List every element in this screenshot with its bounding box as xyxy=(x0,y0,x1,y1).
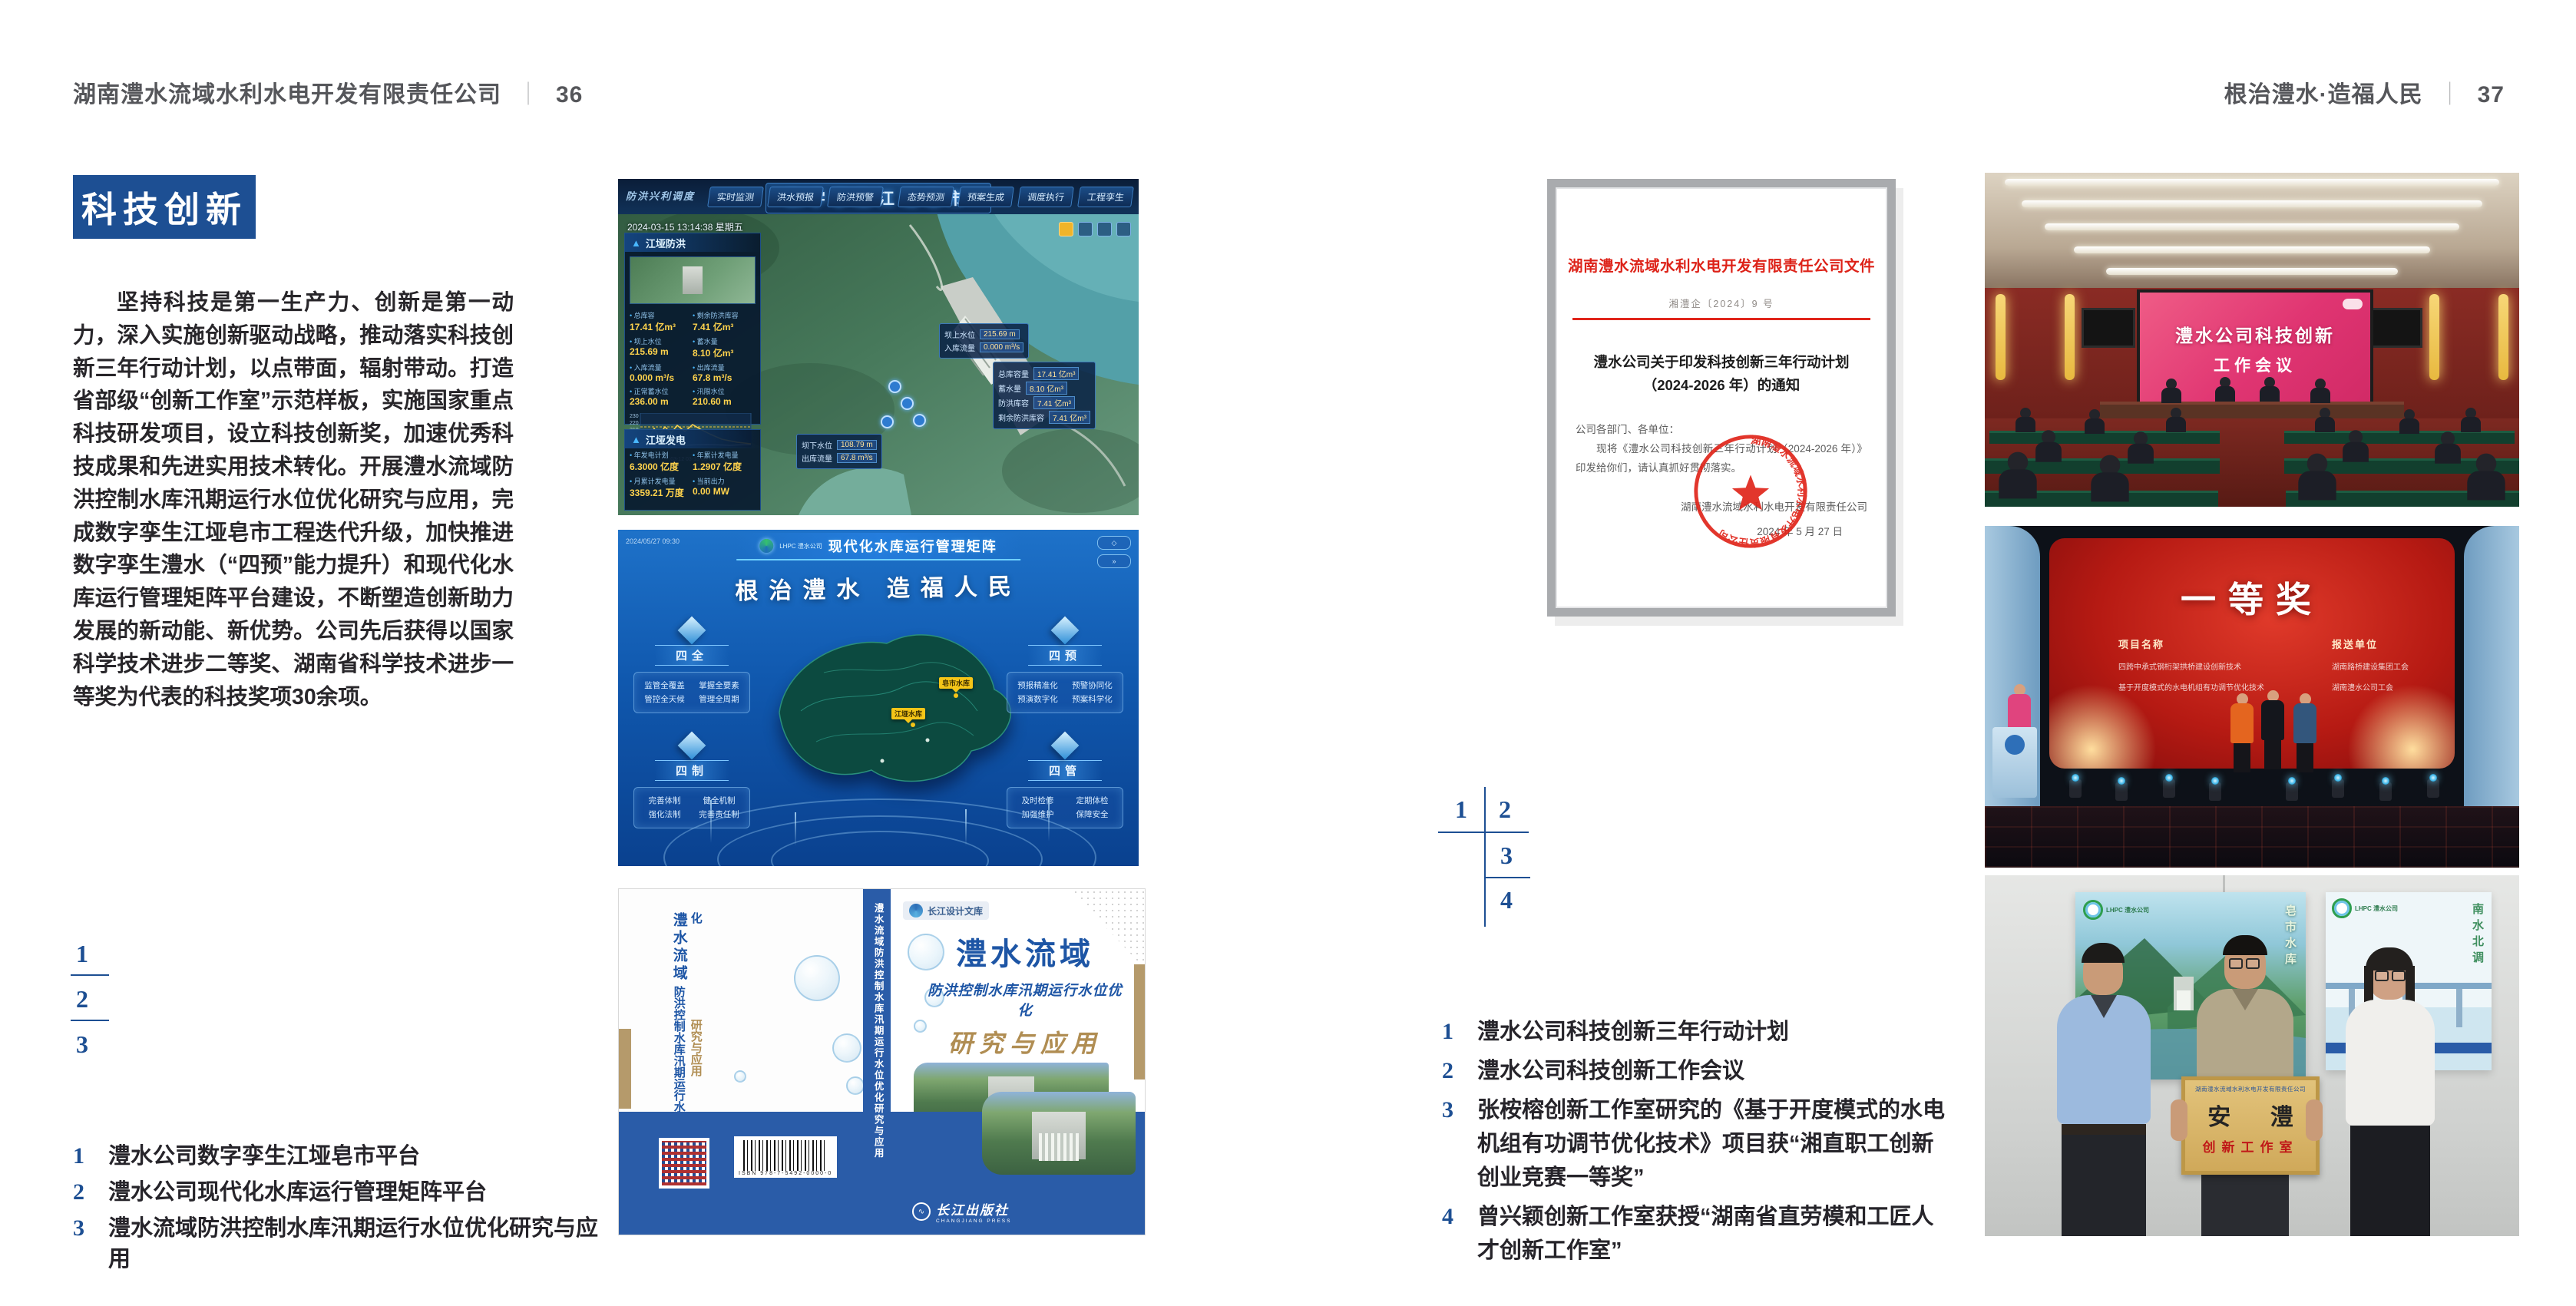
group-icon xyxy=(678,617,706,645)
group-name: 四制 xyxy=(655,760,729,781)
book-subtitle: 防洪控制水库汛期运行水位优化 xyxy=(921,980,1129,1020)
book-spine: 澧水流域防洪控制水库汛期运行水位优化研究与应用 xyxy=(863,889,891,1235)
awardee-orange xyxy=(2230,693,2254,772)
water-bubble xyxy=(794,955,840,1001)
caption-row: 3 澧水流域防洪控制水库汛期运行水位优化研究与应用 xyxy=(73,1213,610,1275)
callout-value: 108.79 m xyxy=(837,440,877,450)
caption-text: 澧水公司科技创新工作会议 xyxy=(1477,1054,1744,1088)
body-paragraph: 坚持科技是第一生产力、创新是第一动力，深入实施创新驱动战略，推动落实科技创新三年… xyxy=(73,286,514,713)
ceiling-light xyxy=(2106,268,2398,275)
audience-person xyxy=(2035,430,2062,462)
stat: 月累计发电量3359.21 万度 xyxy=(630,476,693,499)
group-item: 管理全周期 xyxy=(692,693,746,706)
gold-orb xyxy=(2049,684,2157,769)
figure-reservoir-matrix-platform: 2024/05/27 09:30 ◇ » LHPC 澧水公司 现代化水库运行管理… xyxy=(618,530,1139,866)
book-front-cover: 长江设计文库 澧水流域 防洪控制水库汛期运行水位优化 研究与应用 洪兴骏 沈坤民… xyxy=(891,889,1145,1235)
series-badge-text: 长江设计文库 xyxy=(928,904,983,918)
stat-value: 0.000 m³/s xyxy=(630,372,693,383)
group-item: 及时检修 xyxy=(1010,794,1065,808)
stat-value: 1.2907 亿度 xyxy=(693,460,756,473)
company-seal-stamp: 湖南澧水流域水利水电开发有限责任公司 xyxy=(1691,431,1810,551)
award-col-projects: 项目名称 四跨中承式钢桁架拱桥建设创新技术 基于开度模式的水电机组有功调节优化技… xyxy=(2118,636,2264,693)
stat-value: 67.8 m³/s xyxy=(693,372,756,383)
callout-value: 0.000 m³/s xyxy=(980,342,1023,352)
audience-person xyxy=(2128,431,2154,464)
gate-marker-icon xyxy=(881,415,894,428)
seated-person xyxy=(2161,379,2181,403)
stat-label: 当前出力 xyxy=(693,476,756,486)
caption-number: 3 xyxy=(1442,1093,1477,1195)
caption-number: 1 xyxy=(1442,1015,1477,1049)
dashboard-tabs-left: 实时监测 洪水预报 防洪预警 xyxy=(709,187,882,207)
front-tan-bar xyxy=(1134,964,1145,1080)
matrix-buttons: ◇ » xyxy=(1097,536,1131,568)
stat-label: 出库流量 xyxy=(693,362,756,372)
document-red-rule xyxy=(1572,318,1870,320)
wall-lamp xyxy=(2429,294,2439,380)
book-title2: 研究与应用 xyxy=(921,1024,1129,1060)
caption-number: 4 xyxy=(1442,1200,1477,1268)
lhpc-logo-icon: LHPC 澧水公司 xyxy=(2332,898,2398,918)
tab-dispatch-execution: 调度执行 xyxy=(1017,187,1074,207)
audience-person xyxy=(2467,454,2505,501)
index-divider xyxy=(1484,877,1530,878)
matrix-logo-text: LHPC 澧水公司 xyxy=(779,543,822,550)
group-siyu: 四预 预报精准化 预警协同化 预演数字化 预案科学化 xyxy=(1007,620,1123,713)
group-item: 预警协同化 xyxy=(1065,679,1119,693)
group-item: 保障安全 xyxy=(1065,808,1119,822)
ceiling-light xyxy=(2022,200,2482,207)
award-project: 四跨中承式钢桁架拱桥建设创新技术 xyxy=(2118,660,2264,672)
audience-person xyxy=(2315,408,2335,432)
stat: 正常蓄水位236.00 m xyxy=(630,386,693,407)
basin-map xyxy=(732,603,1039,811)
publisher-name-en: CHANGJIANG PRESS xyxy=(936,1218,1011,1224)
index-divider xyxy=(71,974,109,976)
map-marker-zaoshi: 皂市水库 xyxy=(939,677,973,689)
panel-header: ▲江垭发电 xyxy=(625,430,760,448)
stage-light-icon xyxy=(2427,779,2439,798)
wall-lamp xyxy=(2498,294,2508,380)
side-tv xyxy=(2369,308,2422,348)
front-blue-band: ∿ 长江出版社 CHANGJIANG PRESS xyxy=(891,1112,1145,1235)
document-header: 湖南澧水流域水利水电开发有限责任公司文件 xyxy=(1556,253,1887,276)
stat-value: 6.3000 亿度 xyxy=(630,460,693,473)
stat-label: 入库流量 xyxy=(630,362,693,372)
dam-thumbnail xyxy=(630,256,756,304)
stat-label: 正常蓄水位 xyxy=(630,386,693,396)
back-title-3: 研究与应用 xyxy=(689,1019,703,1076)
poster-right-title: 南水北调 xyxy=(2469,903,2485,967)
screen-logo-icon xyxy=(2343,299,2363,309)
caption-text: 澧水公司现代化水库运行管理矩阵平台 xyxy=(108,1177,487,1208)
caption-text: 澧水公司数字孪生江垭皂市平台 xyxy=(108,1141,420,1172)
dashboard-datetime: 2024-03-15 13:14:38 星期五 xyxy=(627,220,743,233)
left-captions: 1 澧水公司数字孪生江垭皂市平台 2 澧水公司现代化水库运行管理矩阵平台 3 澧… xyxy=(73,1141,610,1280)
award-project: 基于开度模式的水电机组有功调节优化技术 xyxy=(2118,681,2264,693)
audience-person xyxy=(2166,408,2186,432)
stat: 当前出力0.00 MW xyxy=(693,476,756,499)
panel-jiangya-power: ▲江垭发电 年发电计划6.3000 亿度 年累计发电量1.2907 亿度 月累计… xyxy=(624,429,761,511)
panel-title: 江垭发电 xyxy=(646,432,686,447)
barcode: ISBN 978-7-5492-0000-0 xyxy=(734,1136,837,1178)
tab-plan-generation: 预案生成 xyxy=(957,187,1014,207)
callout-label: 剩余防洪库容 xyxy=(998,412,1044,423)
tab-situation-forecast: 态势预测 xyxy=(898,187,954,207)
locate-icon xyxy=(1097,222,1112,236)
caption-number: 2 xyxy=(1442,1054,1477,1088)
collar xyxy=(2232,989,2258,1010)
audience-person xyxy=(2085,409,2105,434)
lhpc-logo-icon: LHPC 澧水公司 xyxy=(2083,900,2149,920)
menu-icon: » xyxy=(1097,554,1131,568)
seated-person xyxy=(2310,379,2330,403)
stat-label: 年累计发电量 xyxy=(693,450,756,460)
gate-marker-icon xyxy=(913,414,926,427)
stat-label: 总库容 xyxy=(630,310,693,320)
series-badge: 长江设计文库 xyxy=(903,901,989,920)
back-tan-block xyxy=(619,1029,631,1109)
wall-lamp xyxy=(2065,294,2075,380)
poster-left-title: 皂市水库 xyxy=(2282,904,2298,969)
caption-row: 2 澧水公司科技创新工作会议 xyxy=(1442,1054,1955,1088)
header-separator: ｜ xyxy=(2439,82,2462,107)
front-title-block: 澧水流域 防洪控制水库汛期运行水位优化 研究与应用 洪兴骏 沈坤民 鲁军 刘世军… xyxy=(921,929,1129,1083)
figure-index-1: 1 xyxy=(76,940,88,968)
side-tv xyxy=(2082,308,2135,348)
page-header-right: 根治澧水·造福人民｜37 xyxy=(2224,75,2505,109)
group-icon xyxy=(678,732,706,760)
light-pillar xyxy=(1048,797,1050,841)
dashboard-corner-label: 防洪兴利调度 xyxy=(626,188,695,203)
figure-award-photo: 一等奖 项目名称 四跨中承式钢桁架拱桥建设创新技术 基于开度模式的水电机组有功调… xyxy=(1985,526,2519,868)
spine-title: 澧水流域防洪控制水库汛期运行水位优化研究与应用 xyxy=(871,903,884,1210)
hand xyxy=(2306,1099,2323,1141)
callout-label: 蓄水量 xyxy=(998,382,1021,394)
stage-light-icon xyxy=(2115,782,2128,801)
stat: 入库流量0.000 m³/s xyxy=(630,362,693,383)
matrix-header: LHPC 澧水公司 现代化水库运行管理矩阵 xyxy=(736,533,1020,560)
workshop-plaque: 湖南澧水流域水利水电开发有限责任公司 安 澧 创新工作室 xyxy=(2181,1076,2320,1175)
audience-person xyxy=(2343,430,2369,462)
caption-text: 张桉榕创新工作室研究的《基于开度模式的水电机组有功调节优化技术》项目获“湘直职工… xyxy=(1477,1093,1955,1195)
ceiling-light xyxy=(2045,223,2459,230)
tab-project-twin: 工程孪生 xyxy=(1077,187,1134,207)
right-captions: 1 澧水公司科技创新三年行动计划 2 澧水公司科技创新工作会议 3 张桉榕创新工… xyxy=(1442,1015,1955,1273)
publisher-logo-icon: ∿ xyxy=(912,1202,931,1221)
stat-value: 7.41 亿m³ xyxy=(693,320,756,333)
stat: 年累计发电量1.2907 亿度 xyxy=(693,450,756,473)
screen-line1: 澧水公司科技创新 xyxy=(2175,321,2335,347)
stat-label: 剩余防洪库容 xyxy=(693,310,756,320)
award-title: 一等奖 xyxy=(2049,572,2455,623)
star-icon xyxy=(1732,475,1769,511)
screen-line2: 工作会议 xyxy=(2214,353,2297,376)
fullscreen-icon: ◇ xyxy=(1097,536,1131,550)
ceiling-light xyxy=(2074,246,2430,253)
magazine-spread: 湖南澧水流域水利水电开发有限责任公司｜36 根治澧水·造福人民｜37 科技创新 … xyxy=(0,0,2576,1306)
caption-text: 澧水流域防洪控制水库汛期运行水位优化研究与应用 xyxy=(108,1213,610,1275)
stage-light-icon xyxy=(2209,782,2221,801)
official-document: 湖南澧水流域水利水电开发有限责任公司文件 湘澧企〔2024〕9 号 澧水公司关于… xyxy=(1547,179,1896,617)
page-number-36: 36 xyxy=(556,82,583,107)
group-name: 四全 xyxy=(655,645,729,666)
tab-flood-forecast: 洪水预报 xyxy=(767,187,824,207)
header-separator: ｜ xyxy=(517,82,541,107)
layers-icon xyxy=(1078,222,1093,236)
podium xyxy=(1992,727,2037,798)
glasses-icon xyxy=(2375,970,2406,981)
t-shirt xyxy=(2346,1000,2435,1126)
callout-capacity: 总库容量17.41 亿m³ 蓄水量8.10 亿m³ 防洪库容7.41 亿m³ 剩… xyxy=(993,362,1096,429)
page-number-37: 37 xyxy=(2478,82,2505,107)
caption-row: 2 澧水公司现代化水库运行管理矩阵平台 xyxy=(73,1177,610,1208)
map-marker-jiangya: 江垭水库 xyxy=(891,708,925,719)
plaque-title: 安 澧 xyxy=(2185,1098,2316,1132)
light-pillar xyxy=(795,812,796,846)
group-siquan: 四全 监管全覆盖 掌握全要素 管控全天候 管理全周期 xyxy=(633,620,750,713)
stat-value: 210.60 m xyxy=(693,396,756,407)
stat: 年发电计划6.3000 亿度 xyxy=(630,450,693,473)
callout-label: 坝上水位 xyxy=(944,329,975,340)
trousers xyxy=(2062,1135,2146,1236)
callout-value: 67.8 m³/s xyxy=(837,453,877,463)
stat: 蓄水量8.10 亿m³ xyxy=(693,336,756,359)
panel-stats: 年发电计划6.3000 亿度 年累计发电量1.2907 亿度 月累计发电量335… xyxy=(625,448,760,504)
back-cover-title: 澧水流域 防洪控制水库汛期运行水位优化 研究与应用 xyxy=(670,912,703,1142)
stat-value: 3359.21 万度 xyxy=(630,486,693,499)
gold-orb xyxy=(2347,684,2455,769)
figure-meeting-photo: 澧水公司科技创新 工作会议 xyxy=(1985,173,2519,507)
caption-text: 曾兴颖创新工作室获授“湖南省直劳模和工匠人才创新工作室” xyxy=(1477,1200,1955,1268)
panel-stats: 总库容17.41 亿m³ 剩余防洪库容7.41 亿m³ 坝上水位215.69 m… xyxy=(625,309,760,412)
stat: 总库容17.41 亿m³ xyxy=(630,310,693,333)
group-item: 强化法制 xyxy=(637,808,692,822)
stage-floor xyxy=(1985,806,2519,868)
seated-person xyxy=(2260,377,2280,402)
wall-lamp xyxy=(1996,294,2006,380)
group-icon xyxy=(1051,617,1080,645)
tab-realtime-monitor: 实时监测 xyxy=(707,187,764,207)
panel-title: 江垭防洪 xyxy=(646,236,686,250)
back-blue-band: ISBN 978-7-5492-0000-0 xyxy=(619,1112,863,1235)
barcode-lines xyxy=(743,1140,828,1171)
figure-index-2: 2 xyxy=(76,985,88,1013)
qr-code xyxy=(659,1138,709,1189)
group-item: 预报精准化 xyxy=(1010,679,1065,693)
group-name: 四预 xyxy=(1028,645,1102,666)
caption-number: 3 xyxy=(73,1213,108,1275)
document-title-line2: （2024-2026 年）的通知 xyxy=(1556,374,1887,397)
figure-index-3: 3 xyxy=(76,1030,88,1059)
callout-downstream: 坝下水位108.79 m 出库流量67.8 m³/s xyxy=(796,434,882,469)
poster-logo-text: LHPC 澧水公司 xyxy=(2106,907,2149,914)
stat-value: 17.41 亿m³ xyxy=(630,320,693,333)
figure-book-cover: 澧水流域 防洪控制水库汛期运行水位优化 研究与应用 ISBN 978-7-549… xyxy=(618,888,1146,1235)
figure-index-1: 1 xyxy=(1455,795,1467,824)
stage-light-icon xyxy=(2332,779,2344,798)
callout-value: 7.41 亿m³ xyxy=(1049,411,1090,424)
award-org: 湖南路桥建设集团工会 xyxy=(2332,660,2409,672)
caption-row: 1 澧水公司数字孪生江垭皂市平台 xyxy=(73,1141,610,1172)
trousers xyxy=(2350,1126,2430,1236)
stat-value: 215.69 m xyxy=(630,346,693,357)
callout-upstream: 坝上水位215.69 m 入库流量0.000 m³/s xyxy=(939,323,1029,359)
seated-person xyxy=(2215,377,2235,402)
audience-table xyxy=(1989,431,2220,444)
presenter-suit xyxy=(2261,690,2284,769)
stat: 汛限水位210.60 m xyxy=(693,386,756,407)
light-pillar xyxy=(965,809,967,846)
back-title-1: 澧水流域 xyxy=(671,912,687,983)
group-icon xyxy=(1051,732,1080,760)
section-title-text: 科技创新 xyxy=(81,182,247,233)
stage-light-icon xyxy=(2286,782,2298,801)
caption-text: 澧水公司科技创新三年行动计划 xyxy=(1477,1015,1789,1049)
callout-value: 8.10 亿m³ xyxy=(1026,382,1067,395)
panel-jiangya-flood: ▲江垭防洪 总库容17.41 亿m³ 剩余防洪库容7.41 亿m³ 坝上水位21… xyxy=(624,233,761,425)
water-bubble xyxy=(846,1076,865,1095)
figure-index-3: 3 xyxy=(1500,841,1513,870)
page-header-left: 湖南澧水流域水利水电开发有限责任公司｜36 xyxy=(73,75,583,109)
callout-label: 防洪库容 xyxy=(998,397,1029,408)
group-item: 预案科学化 xyxy=(1065,693,1119,706)
callout-value: 7.41 亿m³ xyxy=(1033,396,1075,409)
belt xyxy=(2062,1124,2146,1135)
dashboard-toolbar-icons xyxy=(1059,222,1131,236)
stage-light-icon xyxy=(2163,779,2175,798)
figure-workshop-photo: LHPC 澧水公司 皂市水库 LHPC 澧水公司 南水北调 xyxy=(1985,875,2519,1236)
book-title: 澧水流域 xyxy=(921,929,1129,974)
callout-value: 215.69 m xyxy=(980,329,1020,339)
audience-person xyxy=(2399,409,2419,434)
audience-person xyxy=(1999,452,2036,499)
stat: 出库流量67.8 m³/s xyxy=(693,362,756,383)
group-item: 管控全天候 xyxy=(637,693,692,706)
caption-row: 1 澧水公司科技创新三年行动计划 xyxy=(1442,1015,1955,1049)
index-divider xyxy=(1438,832,1529,833)
barcode-caption: ISBN 978-7-5492-0000-0 xyxy=(739,1171,832,1176)
band-dam-photo xyxy=(982,1092,1136,1175)
figure-digital-twin-dashboard: 防洪兴利调度 数字孪生江垭皂市 实时监测 洪水预报 防洪预警 态势预测 预案生成… xyxy=(618,179,1139,515)
matrix-title: 现代化水库运行管理矩阵 xyxy=(828,536,997,556)
alert-icon xyxy=(1059,222,1073,236)
stat-value: 8.10 亿m³ xyxy=(693,346,756,359)
plaque-subtitle: 创新工作室 xyxy=(2185,1136,2316,1156)
lhpc-logo-icon xyxy=(759,539,773,553)
stat-label: 坝上水位 xyxy=(630,336,693,346)
audience-person xyxy=(2461,408,2481,432)
podium-logo-icon xyxy=(2005,735,2025,755)
glasses-icon xyxy=(2229,958,2260,969)
stat-label: 月累计发电量 xyxy=(630,476,693,486)
stat: 坝上水位215.69 m xyxy=(630,336,693,359)
index-divider xyxy=(71,1020,109,1021)
slogan: 根治澧水·造福人民 xyxy=(2224,82,2423,107)
stat-label: 汛限水位 xyxy=(693,386,756,396)
document-title: 澧水公司关于印发科技创新三年行动计划 （2024-2026 年）的通知 xyxy=(1556,351,1887,397)
publisher-name: 长江出版社 xyxy=(936,1199,1011,1218)
stage-light-icon xyxy=(2069,779,2082,798)
group-panel: 预报精准化 预警协同化 预演数字化 预案科学化 xyxy=(1007,672,1123,713)
col-header: 报送单位 xyxy=(2332,636,2409,651)
changjiang-design-logo-icon xyxy=(909,904,923,918)
polo-shirt xyxy=(2057,995,2151,1124)
audience-person xyxy=(2015,408,2035,432)
plaque-header: 湖南澧水流域水利水电开发有限责任公司 xyxy=(2185,1085,2316,1093)
stat: 剩余防洪库容7.41 亿m³ xyxy=(693,310,756,333)
stat-label: 年发电计划 xyxy=(630,450,693,460)
poster-logo-text: LHPC 澧水公司 xyxy=(2355,905,2398,912)
caption-number: 2 xyxy=(73,1177,108,1208)
stat-label: 蓄水量 xyxy=(693,336,756,346)
award-col-orgs: 报送单位 湖南路桥建设集团工会 湖南澧水公司工会 xyxy=(2332,636,2409,693)
group-name: 四管 xyxy=(1028,760,1102,781)
callout-label: 总库容量 xyxy=(998,368,1029,379)
publisher-block: ∿ 长江出版社 CHANGJIANG PRESS xyxy=(912,1199,1011,1224)
index-divider xyxy=(1484,787,1486,927)
callout-label: 入库流量 xyxy=(944,342,975,353)
tab-flood-warning: 防洪预警 xyxy=(827,187,884,207)
document-title-line1: 澧水公司关于印发科技创新三年行动计划 xyxy=(1556,351,1887,374)
gate-marker-icon xyxy=(888,380,901,393)
audience-person xyxy=(2435,431,2461,464)
group-item: 监管全覆盖 xyxy=(637,679,692,693)
stat-value: 0.00 MW xyxy=(693,486,756,497)
group-panel: 监管全覆盖 掌握全要素 管控全天候 管理全周期 xyxy=(633,672,750,713)
group-item: 掌握全要素 xyxy=(692,679,746,693)
water-bubble xyxy=(832,1033,861,1063)
collar xyxy=(2091,995,2117,1018)
caption-row: 3 张桉榕创新工作室研究的《基于开度模式的水电机组有功调节优化技术》项目获“湘直… xyxy=(1442,1093,1955,1195)
section-title: 科技创新 xyxy=(73,175,256,239)
group-item: 定期体检 xyxy=(1065,794,1119,808)
ceiling-light xyxy=(2005,179,2499,186)
stage-light-icon xyxy=(2379,782,2392,801)
gate-marker-icon xyxy=(901,397,914,410)
group-item: 完善体制 xyxy=(637,794,692,808)
caption-number: 1 xyxy=(73,1141,108,1172)
spillway xyxy=(1039,1133,1079,1161)
company-name: 湖南澧水流域水利水电开发有限责任公司 xyxy=(73,82,501,107)
callout-value: 17.41 亿m³ xyxy=(1033,367,1079,380)
book-back-cover: 澧水流域 防洪控制水库汛期运行水位优化 研究与应用 ISBN 978-7-549… xyxy=(619,889,863,1235)
matrix-slogan: 根治澧水 造福人民 xyxy=(735,567,1022,607)
light-pillar xyxy=(710,800,712,843)
awardee-blue xyxy=(2293,693,2316,772)
thumb-dam xyxy=(683,266,703,294)
water-bubble xyxy=(734,1070,746,1083)
panel-header: ▲江垭防洪 xyxy=(625,233,760,252)
audience-person xyxy=(2091,455,2128,502)
stat-value: 236.00 m xyxy=(630,396,693,407)
document-number: 湘澧企〔2024〕9 号 xyxy=(1556,296,1887,310)
matrix-datetime: 2024/05/27 09:30 xyxy=(626,537,680,545)
group-item: 预演数字化 xyxy=(1010,693,1065,706)
col-header: 项目名称 xyxy=(2118,636,2264,651)
figure-index-4: 4 xyxy=(1500,886,1513,914)
hand xyxy=(2171,1099,2187,1141)
user-icon xyxy=(1116,222,1131,236)
callout-label: 坝下水位 xyxy=(802,439,832,451)
caption-row: 4 曾兴颖创新工作室获授“湖南省直劳模和工匠人才创新工作室” xyxy=(1442,1200,1955,1268)
audience-person xyxy=(2298,454,2336,501)
callout-label: 出库流量 xyxy=(802,452,832,464)
figure-index-2: 2 xyxy=(1499,795,1511,824)
dashboard-tabs-right: 态势预测 预案生成 调度执行 工程孪生 xyxy=(899,187,1133,207)
group-item: 健全机制 xyxy=(692,794,746,808)
